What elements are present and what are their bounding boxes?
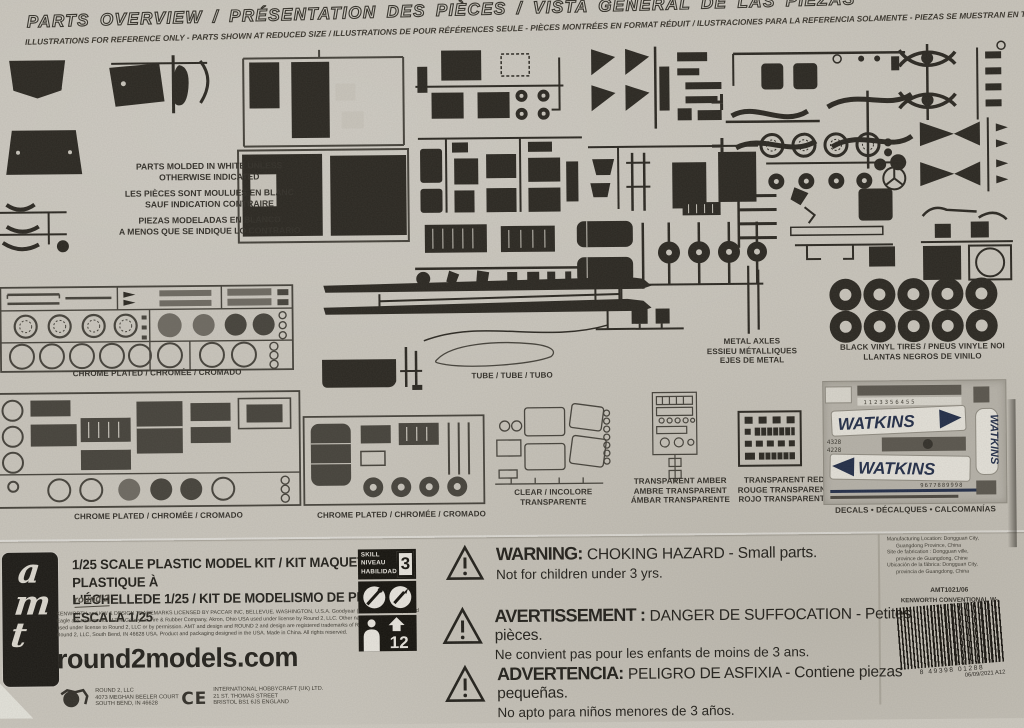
label-chrome-2: CHROME PLATED / CHROMÉE / CROMADO <box>33 510 283 522</box>
skill-level-number: 3 <box>397 551 414 577</box>
warning-triangle-icon <box>445 664 485 704</box>
decal-number: 4328 <box>827 439 842 446</box>
round2-address: ROUND 2, LLC 4073 MEGHAN BEELER COURT SO… <box>95 687 179 708</box>
up-arrow-icon <box>388 617 404 631</box>
glue-pen-icon <box>388 585 412 609</box>
decal-sheet: 1123356455 WATKINS 4328 4228 WATKINS 967… <box>822 379 1007 505</box>
decal-watkins-2: WATKINS <box>858 458 936 478</box>
svg-text:12: 12 <box>390 633 409 652</box>
sprue-roll-bars <box>0 198 83 257</box>
sprue-trough <box>320 345 432 392</box>
sprue-hood-top <box>6 128 84 181</box>
sprue-chrome-2 <box>0 390 301 511</box>
decal-number: 9677889998 <box>920 483 963 489</box>
sprue-axle-springs <box>893 43 1014 124</box>
decal-watkins-1: WATKINS <box>837 412 916 434</box>
label-tube: TUBE / TUBE / TUBO <box>417 370 607 381</box>
sprue-front-axles <box>918 115 1015 196</box>
ihc-address: INTERNATIONAL HOBBYCRAFT (UK) LTD. 21 ST… <box>213 686 323 707</box>
sprue-engine-parts <box>416 131 587 219</box>
decal-number: 4228 <box>827 447 842 454</box>
label-metal-axles: METAL AXLES ESSIEU MÉTALLIQUES EJES DE M… <box>687 336 817 366</box>
round2-gear-logo <box>57 688 89 710</box>
warning-fr: AVERTISSEMENT : DANGER DE SUFFOCATION - … <box>442 602 913 663</box>
warning-en: WARNING: CHOKING HAZARD - Small parts. N… <box>446 540 886 582</box>
label-decals: DECALS • DÉCALQUES • CALCOMANÍAS <box>829 504 1001 515</box>
decal-watkins-vertical: WATKINS <box>988 414 1000 465</box>
tube-part <box>430 336 562 371</box>
amt-logo: amt <box>2 552 59 687</box>
sprue-bumper <box>107 53 214 118</box>
tools-required-badge <box>358 581 416 614</box>
age-badge: 12 <box>358 615 416 652</box>
label-tires: BLACK VINYL TIRES / PNEUS VINYLE NOI LLA… <box>835 341 1010 362</box>
sprue-chrome-1 <box>0 284 294 373</box>
box-back-panel: PARTS OVERVIEW / PRÉSENTATION DES PIÈCES… <box>0 0 1024 728</box>
label-clear: CLEAR / INCOLORE TRANSPARENTE <box>493 487 613 507</box>
item-number: AMT1021/06 <box>887 586 1011 594</box>
decal-number: 1123356455 <box>863 400 916 407</box>
sprue-windshield-frame <box>7 58 67 109</box>
sprue-clear <box>490 395 613 500</box>
round2-script-logo: round 2 <box>74 593 109 608</box>
barcode: 8 49398 01288 06/09/2021 A12 <box>890 599 1010 684</box>
label-chrome-1: CHROME PLATED / CHROMÉE / CROMADO <box>32 367 282 379</box>
metal-axles <box>741 264 770 338</box>
sprue-amber <box>642 390 705 487</box>
warning-triangle-icon <box>442 606 482 646</box>
barcode-bars <box>896 600 1005 670</box>
ce-mark: CE <box>181 689 207 709</box>
skill-level-badge: SKILL NIVEAU HABILIDAD 3 12 <box>358 549 417 652</box>
frame-rails <box>321 275 661 330</box>
person-age-icon: 12 <box>358 615 416 652</box>
sprue-interior-parts <box>413 47 566 128</box>
warning-es: ADVERTENCIA: PELIGRO DE ASFIXIA - Contie… <box>445 660 916 721</box>
sprue-mudflaps <box>585 46 728 133</box>
website-url: round2models.com <box>57 642 298 675</box>
sprue-radiator-fan <box>918 197 1015 282</box>
vinyl-tires <box>827 273 1004 347</box>
box-edge-shadow <box>1006 399 1016 547</box>
sprue-red <box>737 409 804 468</box>
warning-triangle-icon <box>446 544 484 582</box>
molded-in-white-note: PARTS MOLDED IN WHITE UNLESSOTHERWISE IN… <box>80 160 339 243</box>
sprue-chrome-3 <box>303 414 486 512</box>
label-chrome-3: CHROME PLATED / CHROMÉE / CROMADO <box>311 509 491 520</box>
paint-icon <box>362 585 386 609</box>
manufacturing-location: Manufacturing Location: Dongguan City, G… <box>887 535 1014 575</box>
